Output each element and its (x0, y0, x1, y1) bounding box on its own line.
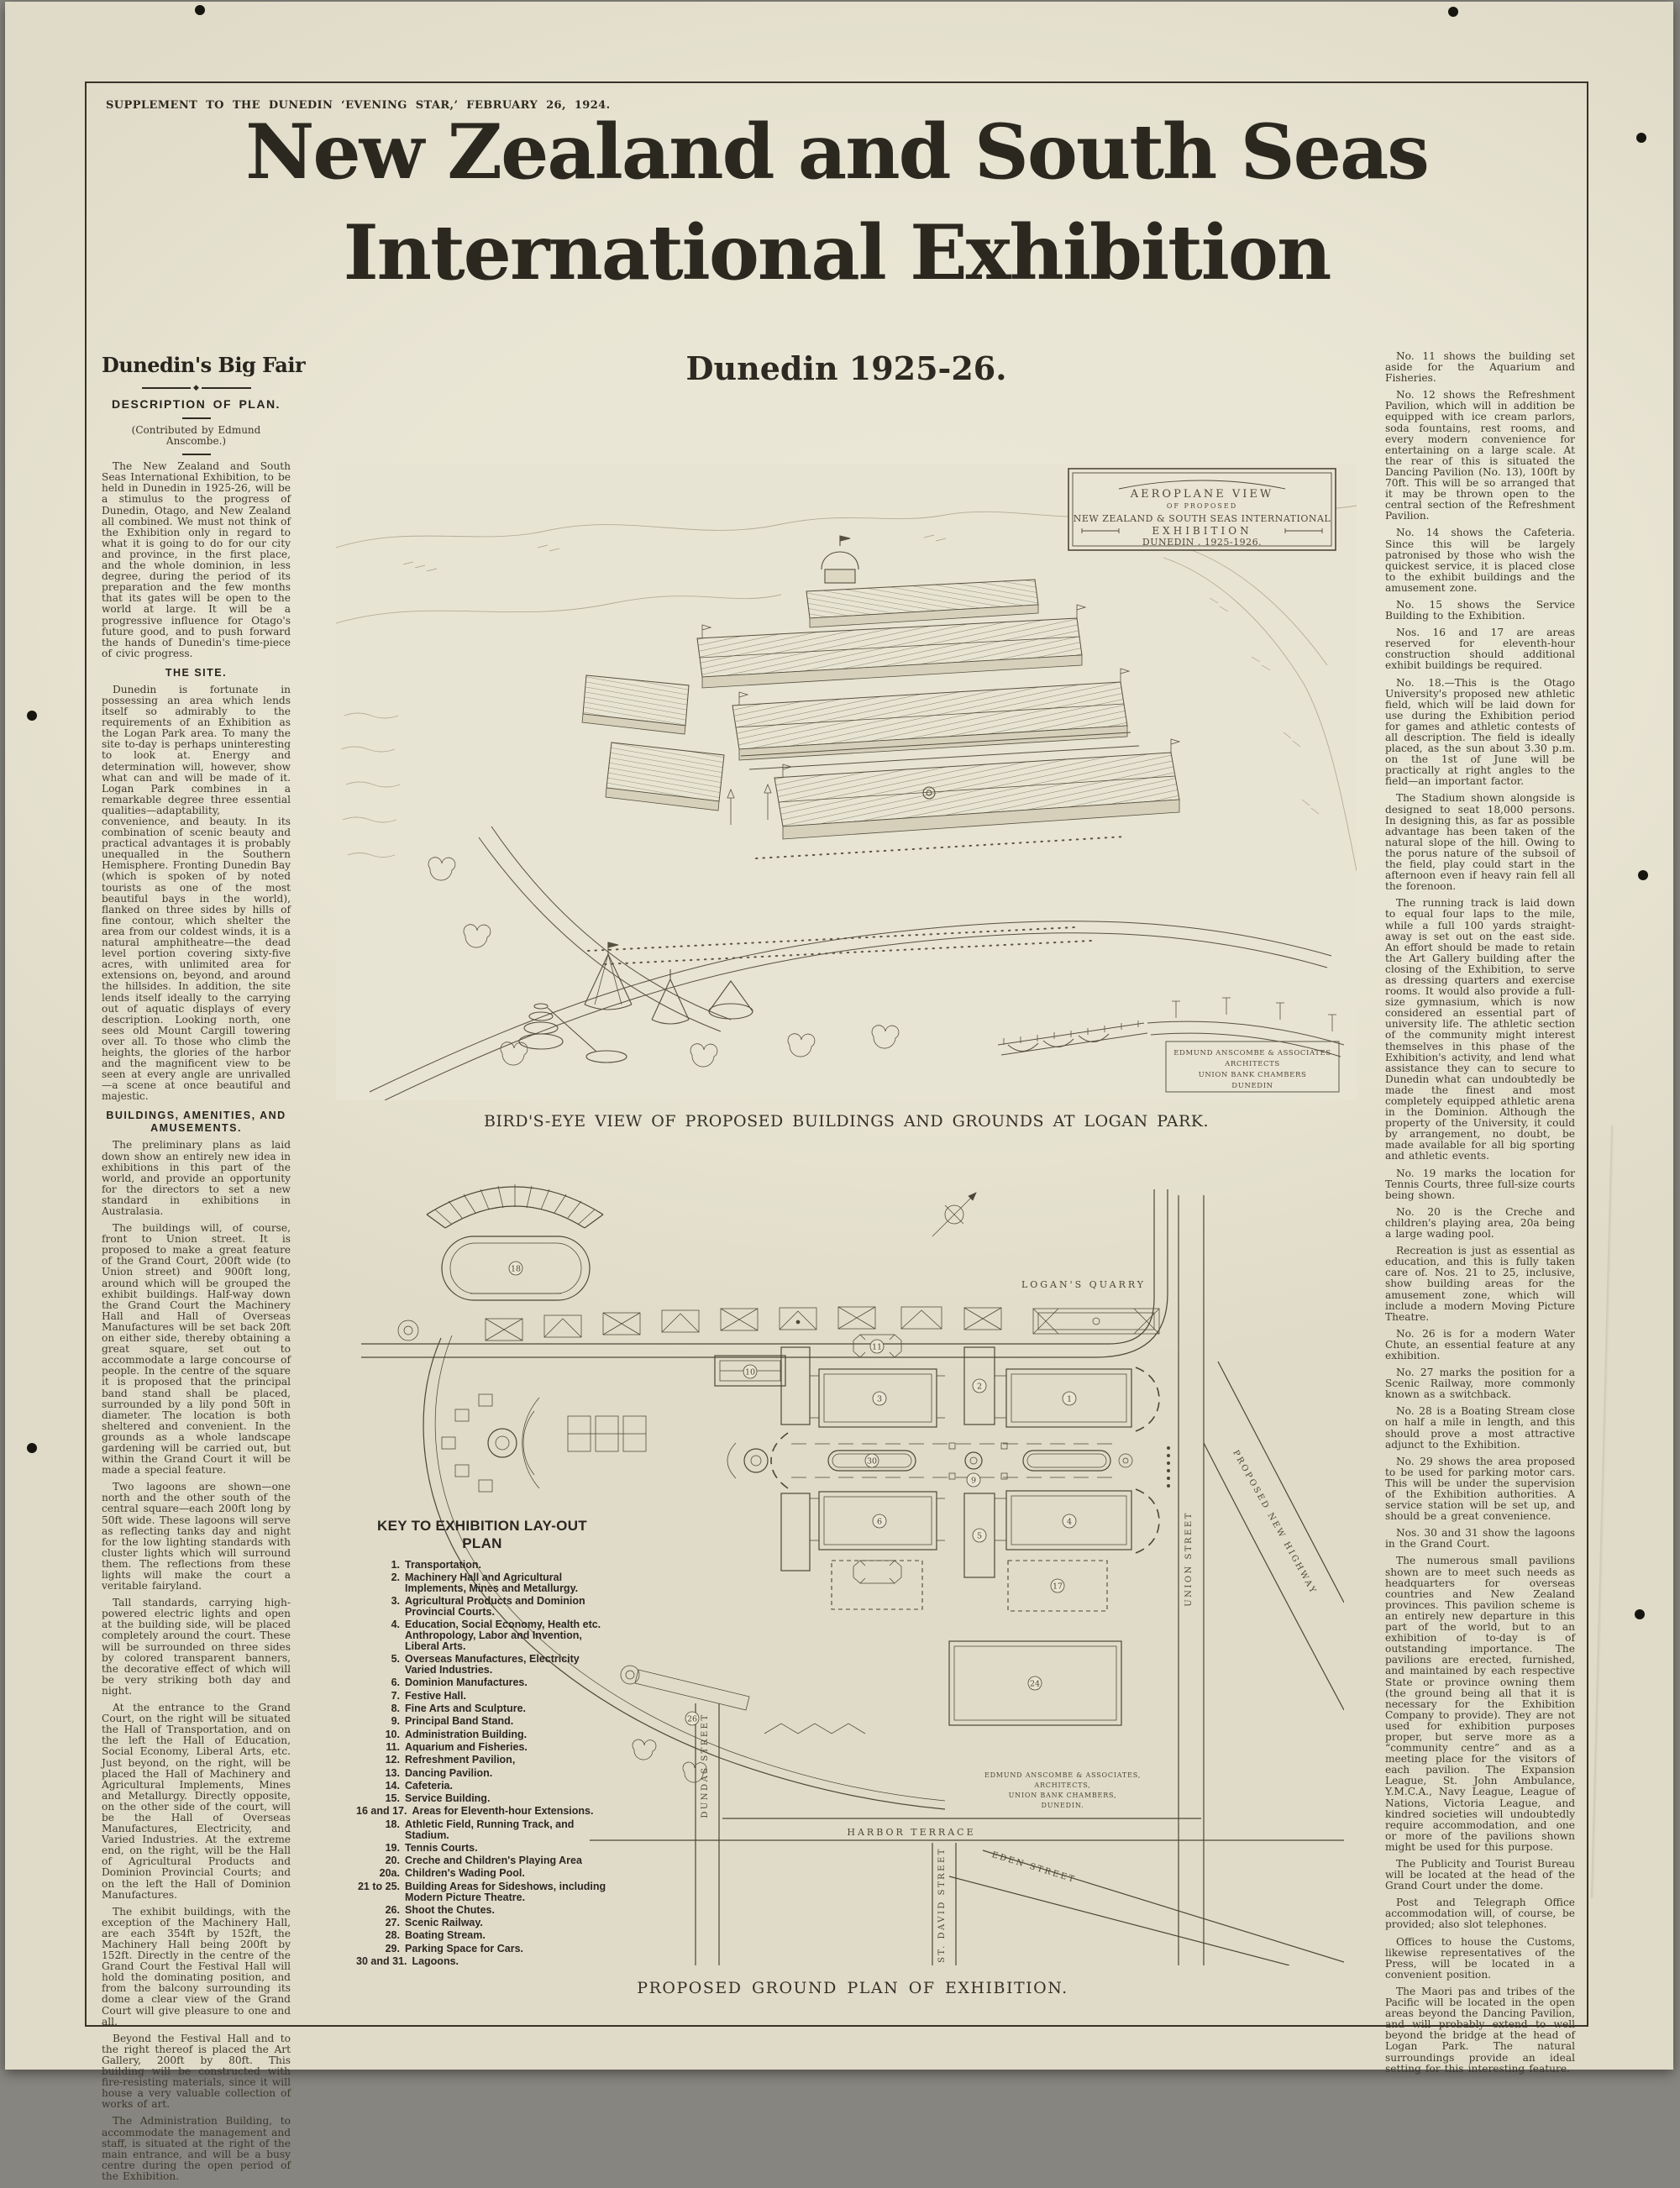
body-paragraph: The buildings will, of course, front to … (102, 1223, 291, 1476)
credit-line: UNION BANK CHAMBERS (1199, 1071, 1307, 1079)
key-item: 6.Dominion Manufactures. (356, 1677, 608, 1688)
key-item: 11.Aquarium and Fisheries. (356, 1742, 608, 1753)
diamond-ornament-icon: ◆ (191, 384, 202, 392)
plan-architect-credit: EDMUND ANSCOMBE & ASSOCIATES, ARCHITECTS… (984, 1771, 1141, 1809)
key-item: 13.Dancing Pavilion. (356, 1768, 608, 1779)
union-street-dotted-crossing (1167, 1446, 1169, 1487)
credit-line: ARCHITECTS (1224, 1060, 1280, 1068)
body-paragraph: The Administration Building, to accommod… (102, 2116, 291, 2182)
key-heading-line1: KEY TO EXHIBITION LAY-OUT (356, 1517, 608, 1535)
article-byline: (Contributed by Edmund Anscombe.) (102, 425, 291, 447)
body-paragraph: The preliminary plans as laid down show … (102, 1140, 291, 1217)
pin-mark (27, 1443, 37, 1453)
svg-text:3: 3 (877, 1395, 882, 1404)
key-item: 3.Agricultural Products and Dominion Pro… (356, 1596, 608, 1618)
body-paragraph: At the entrance to the Grand Court, on t… (102, 1703, 291, 1901)
svg-text:24: 24 (1030, 1680, 1040, 1689)
right-article-column: No. 11 shows the building set aside for … (1385, 351, 1575, 2080)
body-paragraph: Dunedin is fortunate in possessing an ar… (102, 685, 291, 1103)
svg-text:9: 9 (971, 1477, 976, 1486)
masthead-title-line2: International Exhibition (89, 208, 1584, 297)
body-paragraph: The Maori pas and tribes of the Pacific … (1385, 1986, 1575, 2075)
body-paragraph: The Publicity and Tourist Bureau will be… (1385, 1859, 1575, 1892)
plan-street-labels: LOGAN'S QUARRY UNION STREET PROPOSED NEW… (701, 1279, 1318, 1963)
key-item: 7.Festive Hall. (356, 1691, 608, 1702)
dundas-street-label: DUNDAS STREET (701, 1713, 710, 1818)
reserved-areas (832, 1561, 1121, 1725)
body-paragraph: No. 11 shows the building set aside for … (1385, 351, 1575, 384)
cartouche-line: DUNEDIN . 1925-1926. (1142, 537, 1262, 548)
key-item: 16 and 17.Areas for Eleventh-hour Extens… (356, 1806, 608, 1817)
masthead-subtitle: Dunedin 1925-26. (336, 349, 1357, 387)
key-item: 19.Tennis Courts. (356, 1843, 608, 1854)
key-item: 2.Machinery Hall and Agricultural Implem… (356, 1572, 608, 1594)
svg-text:10: 10 (745, 1368, 755, 1377)
key-item: 28.Boating Stream. (356, 1930, 608, 1941)
cartouche-line: NEW ZEALAND & SOUTH SEAS INTERNATIONAL (1074, 513, 1331, 524)
svg-text:2: 2 (977, 1383, 982, 1392)
body-paragraph: The numerous small pavilions shown are t… (1385, 1556, 1575, 1853)
body-paragraph: The exhibit buildings, with the exceptio… (102, 1907, 291, 2028)
svg-text:18: 18 (511, 1265, 521, 1274)
plan-caption: PROPOSED GROUND PLAN OF EXHIBITION. (361, 1979, 1344, 1997)
body-paragraph: No. 20 is the Creche and children's play… (1385, 1207, 1575, 1240)
pavilion-row (486, 1307, 1159, 1341)
st-david-street-label: ST. DAVID STREET (937, 1847, 947, 1963)
key-item: 18.Athletic Field, Running Track, and St… (356, 1819, 608, 1841)
rule-divider (182, 454, 211, 455)
amusement-zone (621, 1666, 865, 1734)
key-to-layout-plan: KEY TO EXHIBITION LAY-OUT PLAN 1.Transpo… (356, 1517, 608, 1969)
stadium (427, 1184, 603, 1300)
body-paragraph: No. 14 shows the Cafeteria. Since this w… (1385, 527, 1575, 594)
body-paragraph: No. 28 is a Boating Stream close on half… (1385, 1406, 1575, 1450)
body-paragraph: The New Zealand and South Seas Internati… (102, 461, 291, 659)
key-item: 10.Administration Building. (356, 1729, 608, 1740)
birdseye-caption: BIRD'S-EYE VIEW OF PROPOSED BUILDINGS AN… (336, 1112, 1357, 1131)
body-paragraph: No. 26 is for a modern Water Chute, an e… (1385, 1329, 1575, 1362)
body-paragraph: The Stadium shown alongside is designed … (1385, 793, 1575, 892)
key-item: 20a.Children's Wading Pool. (356, 1868, 608, 1879)
key-item: 21 to 25.Building Areas for Sideshows, i… (356, 1881, 608, 1903)
body-paragraph: Nos. 30 and 31 show the lagoons in the G… (1385, 1528, 1575, 1550)
svg-text:11: 11 (872, 1343, 882, 1352)
pin-mark (1636, 133, 1646, 143)
article-headline: Dunedin's Big Fair (102, 353, 291, 377)
svg-text:4: 4 (1067, 1518, 1072, 1527)
key-item: 29.Parking Space for Cars. (356, 1944, 608, 1955)
eden-street-label: EDEN STREET (990, 1850, 1077, 1885)
left-article-column: Dunedin's Big Fair ◆ DESCRIPTION OF PLAN… (102, 353, 291, 2188)
masthead-title-line1: New Zealand and South Seas (89, 108, 1584, 197)
highway-label: PROPOSED NEW HIGHWAY (1231, 1449, 1318, 1597)
body-paragraph: No. 15 shows the Service Building to the… (1385, 600, 1575, 622)
body-paragraph: Offices to house the Customs, likewise r… (1385, 1937, 1575, 1981)
body-paragraph: No. 18.—This is the Otago University's p… (1385, 678, 1575, 788)
svg-text:17: 17 (1053, 1582, 1063, 1592)
body-paragraph: Beyond the Festival Hall and to the righ… (102, 2033, 291, 2111)
rule-divider (182, 417, 211, 419)
key-item: 26.Shoot the Chutes. (356, 1905, 608, 1916)
credit-line: DUNEDIN. (1041, 1802, 1084, 1809)
aeroplane-view-cartouche: AEROPLANE VIEW OF PROPOSED NEW ZEALAND &… (1068, 469, 1336, 550)
cartouche-line: OF PROPOSED (1167, 502, 1237, 510)
compass-icon (932, 1193, 976, 1236)
body-paragraph: Nos. 16 and 17 are areas reserved for el… (1385, 627, 1575, 671)
body-paragraph: No. 19 marks the location for Tennis Cou… (1385, 1168, 1575, 1201)
pin-mark (1638, 870, 1648, 880)
birdseye-engraving: AEROPLANE VIEW OF PROPOSED NEW ZEALAND &… (336, 464, 1357, 1100)
key-item: 15.Service Building. (356, 1793, 608, 1804)
body-paragraph: No. 27 marks the position for a Scenic R… (1385, 1367, 1575, 1400)
crosshead-the-site: THE SITE. (102, 667, 291, 679)
logans-quarry-label: LOGAN'S QUARRY (1021, 1279, 1146, 1290)
key-item: 5.Overseas Manufactures, Electricity Var… (356, 1654, 608, 1676)
credit-line: EDMUND ANSCOMBE & ASSOCIATES (1173, 1049, 1331, 1057)
union-street-label: UNION STREET (1184, 1511, 1194, 1607)
body-paragraph: Two lagoons are shown—one north and the … (102, 1482, 291, 1592)
body-paragraph: Post and Telegraph Office accommodation … (1385, 1897, 1575, 1930)
body-paragraph: Tall standards, carrying high-powered el… (102, 1598, 291, 1697)
credit-line: UNION BANK CHAMBERS, (1009, 1792, 1117, 1799)
body-paragraph: The running track is laid down to equal … (1385, 898, 1575, 1162)
cartouche-line: AEROPLANE VIEW (1130, 488, 1273, 501)
headline-ornament: ◆ (142, 384, 251, 392)
body-paragraph: No. 29 shows the area proposed to be use… (1385, 1456, 1575, 1523)
pin-mark (1448, 7, 1458, 17)
key-item: 20.Creche and Children's Playing Area (356, 1855, 608, 1866)
key-heading-line2: PLAN (356, 1535, 608, 1552)
key-item: 1.Transportation. (356, 1560, 608, 1571)
birdseye-illustration: AEROPLANE VIEW OF PROPOSED NEW ZEALAND &… (336, 464, 1357, 1100)
svg-text:26: 26 (687, 1715, 697, 1724)
key-item: 4.Education, Social Economy, Health etc.… (356, 1619, 608, 1651)
key-item: 8.Fine Arts and Sculpture. (356, 1703, 608, 1714)
body-paragraph: No. 12 shows the Refreshment Pavilion, w… (1385, 390, 1575, 522)
svg-text:1: 1 (1067, 1395, 1072, 1404)
pin-mark (27, 711, 37, 721)
svg-text:30: 30 (867, 1457, 877, 1467)
harbor-terrace-label: HARBOR TERRACE (847, 1827, 975, 1838)
key-item: 14.Cafeteria. (356, 1781, 608, 1792)
newspaper-supplement-page: { "colors": { "paper": "#e9e5d4", "ink":… (0, 0, 1680, 2096)
svg-text:5: 5 (977, 1532, 982, 1541)
grand-court-axis (727, 1443, 1132, 1479)
credit-line: DUNEDIN (1231, 1082, 1273, 1090)
pin-mark (1635, 1609, 1645, 1619)
tennis-courts (568, 1416, 646, 1451)
key-item: 12.Refreshment Pavilion, (356, 1755, 608, 1766)
key-item: 9.Principal Band Stand. (356, 1716, 608, 1727)
credit-line: ARCHITECTS, (1033, 1781, 1090, 1789)
credit-line: EDMUND ANSCOMBE & ASSOCIATES, (984, 1771, 1141, 1779)
crosshead-buildings: BUILDINGS, AMENITIES, AND AMUSEMENTS. (102, 1110, 291, 1135)
key-item: 27.Scenic Railway. (356, 1918, 608, 1928)
pin-mark (195, 5, 205, 15)
article-subhead: DESCRIPTION OF PLAN. (102, 397, 291, 411)
svg-text:6: 6 (877, 1518, 882, 1527)
body-paragraph: Recreation is just as essential as educa… (1385, 1246, 1575, 1323)
key-item: 30 and 31.Lagoons. (356, 1956, 608, 1967)
cartouche-line: EXHIBITION (1152, 525, 1252, 537)
creche-area (442, 1394, 539, 1492)
